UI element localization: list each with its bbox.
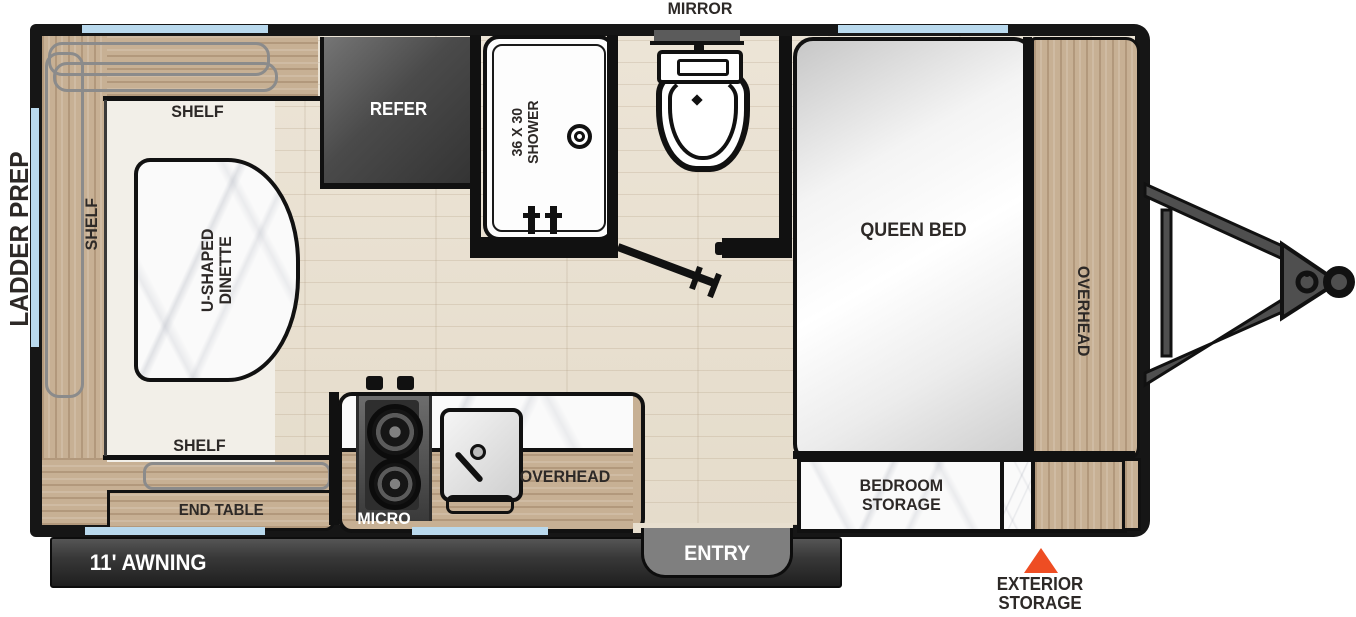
refrigerator: REFER xyxy=(320,37,474,189)
bedroom-wall xyxy=(779,36,792,240)
kitchen-overhead-label: OVERHEAD xyxy=(506,468,624,486)
shower-faucet-icon xyxy=(545,213,562,218)
dinette-table: U-SHAPED DINETTE xyxy=(134,158,300,382)
bench-edge-line xyxy=(103,455,340,460)
bath-wall-bottom xyxy=(470,237,618,258)
ladder-prep-label: LADDER PREP xyxy=(5,98,33,380)
bedroom-overhead-cabinet xyxy=(1031,37,1140,461)
window-left xyxy=(31,108,39,347)
shower-wall-right xyxy=(607,35,618,237)
end-table-label: END TABLE xyxy=(179,502,264,519)
bath-wall-left xyxy=(470,35,481,258)
seat-cushion-outline xyxy=(45,52,84,398)
microwave-label: MICRO xyxy=(350,510,418,528)
bench-edge-line xyxy=(104,100,107,456)
toilet-tank xyxy=(657,50,743,84)
seat-cushion-outline xyxy=(53,62,278,92)
shelf-top-label: SHELF xyxy=(153,103,242,121)
awning-label: 11' AWNING xyxy=(90,551,207,575)
toilet-tank-lid xyxy=(677,59,729,76)
dinette-table-label: U-SHAPED DINETTE xyxy=(199,228,236,311)
shower-faucet-icon xyxy=(523,213,540,218)
hitch-frame xyxy=(1135,170,1356,400)
bedroom-overhead-label: OVERHEAD xyxy=(1074,250,1092,372)
faucet-icon xyxy=(470,444,486,460)
storage-cell-wood xyxy=(1122,458,1141,531)
exterior-storage-marker-icon xyxy=(1024,548,1058,573)
floorplan-canvas: U-SHAPED DINETTE SHELF SHELF SHELF END T… xyxy=(0,0,1356,617)
seat-cushion-outline xyxy=(143,462,331,490)
bedroom-storage-label: BEDROOM STORAGE xyxy=(859,477,942,514)
queen-bed-label: QUEEN BED xyxy=(804,221,1023,242)
burner-icon xyxy=(367,404,423,460)
shower-drain-icon xyxy=(567,124,592,149)
window-bottom-left xyxy=(85,527,265,535)
shower-faucet-icon xyxy=(550,206,557,234)
shower-faucet-icon xyxy=(528,206,535,234)
entry-door: ENTRY xyxy=(641,528,793,578)
shelf-left-label: SHELF xyxy=(83,182,101,267)
mirror-label: MIRROR xyxy=(653,0,747,18)
entry-label: ENTRY xyxy=(684,543,750,566)
bath-door-swing xyxy=(600,233,735,308)
burner-icon xyxy=(369,458,421,510)
shower-label: 36 X 30 SHOWER xyxy=(510,80,542,183)
storage-cell-wood xyxy=(1031,458,1127,533)
end-table: END TABLE xyxy=(107,490,335,531)
exterior-storage-label: EXTERIOR STORAGE xyxy=(979,575,1101,614)
window-bottom-center xyxy=(412,527,548,535)
kitchen-counter: OVERHEAD MICRO xyxy=(338,392,645,533)
queen-bed: QUEEN BED xyxy=(793,37,1034,464)
shower-pan xyxy=(483,35,615,241)
refrigerator-label: REFER xyxy=(370,100,427,119)
window-top-right xyxy=(838,25,1008,33)
window-top-left xyxy=(82,25,268,33)
bedroom-storage: BEDROOM STORAGE xyxy=(797,458,1005,533)
sink-tray xyxy=(446,495,514,514)
cabinet-edge-line xyxy=(103,96,321,101)
stove-knob-icon xyxy=(397,376,414,390)
toilet xyxy=(655,44,743,162)
shelf-bottom-label: SHELF xyxy=(155,437,244,455)
stove-knob-icon xyxy=(366,376,383,390)
